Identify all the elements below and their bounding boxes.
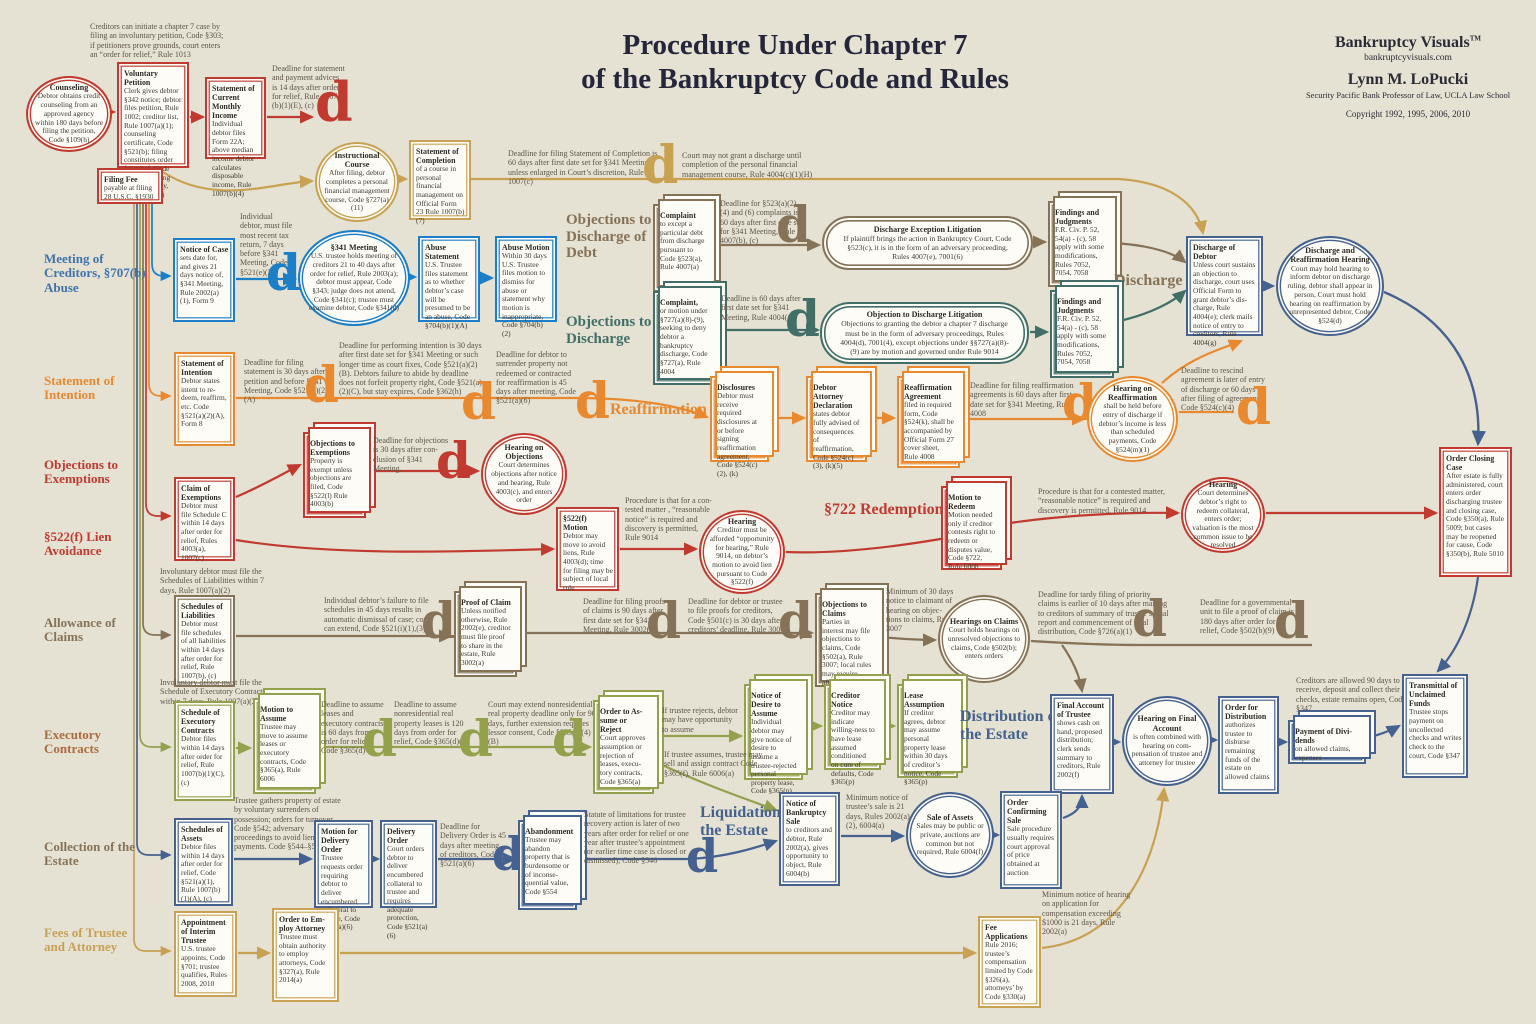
note-trustee-proofs: Deadline for debtor or trustee to file p… — [688, 597, 788, 634]
objections-claims-stack-title: Objections to Claims — [822, 600, 873, 618]
complaint-debt-stack-body: to except a particular debt from dischar… — [660, 219, 704, 271]
copyright: Copyright 1992, 1995, 2006, 2010 — [1280, 109, 1536, 119]
claim-exemptions-box-title: Claim of Exemptions — [181, 484, 229, 502]
brand-tm: TM — [1470, 35, 1481, 43]
note-surrender-text: Deadline for debtor to surrender propert… — [496, 350, 576, 405]
label-lien-avoidance: §522(f) Lien Avoidance — [44, 530, 148, 559]
statement-intention-box: Statement of IntentionDebtor states inte… — [174, 352, 235, 446]
claim-exemptions-box-body: Debtor must file Schedule C within 14 da… — [181, 501, 227, 562]
abuse-statement-box: Abuse StatementU.S. Trustee files statem… — [418, 236, 480, 322]
objection-discharge-litigation-pill: Objection to Discharge LitigationObjecti… — [820, 302, 1029, 364]
complaint-discharge-stack: Complaint,or motion under §727(a)(8)-(9)… — [653, 291, 717, 385]
hearing-522f-circle: HearingCreditor must be afforded “opport… — [699, 510, 785, 594]
deadline-d-completion: d — [642, 145, 678, 188]
figure-title-line1: Procedure Under Chapter 7 — [495, 28, 1095, 62]
publisher-block: Bankruptcy VisualsTM bankruptcyvisuals.c… — [1280, 34, 1536, 119]
fee-applications-box-title: Fee Applications — [985, 923, 1035, 941]
transmittal-unclaimed-box-body: Trustee stops payment on uncollected che… — [1409, 707, 1462, 759]
label-meeting-of-creditors: Meeting of Creditors, §707(b) Abuse — [44, 252, 150, 295]
complaint-debt-stack: Complaintto except a particular debt fro… — [653, 204, 711, 292]
deadline-d-completion-text: d — [642, 135, 678, 196]
employ-attorney-box: Order to Em-ploy AttorneyTrustee must ob… — [272, 908, 339, 1002]
employ-attorney-box-title: Order to Em-ploy Attorney — [279, 915, 333, 933]
counseling-circle-body: Debtor obtains credit counseling from an… — [35, 92, 103, 144]
final-account-box-title: Final Account of Trustee — [1057, 701, 1108, 719]
objections-exemptions-stack-title: Objections to Exemptions — [310, 439, 360, 457]
deadline-d-tardy-text: d — [1132, 589, 1167, 648]
deadline-d-exemptions-text: d — [436, 431, 471, 490]
hearing-reaffirmation-circle-body: shall be held before entry of discharge … — [1096, 402, 1169, 454]
abuse-motion-box: Abuse MotionWithin 30 days U.S. Trustee … — [495, 236, 557, 322]
deadline-d-523: d — [776, 204, 811, 245]
hearing-final-account-circle: Hearing on Final Accountis often combine… — [1122, 696, 1212, 786]
discharge-exception-litigation-pill-body: If plaintiff brings the action in Bankru… — [840, 234, 1015, 261]
voluntary-petition-box-title: Voluntary Petition — [124, 69, 183, 87]
transmittal-unclaimed-box-title: Transmittal of Unclaimed Funds — [1409, 681, 1462, 708]
order-closing-case-box-body: After estate is fully administered, cour… — [1446, 471, 1504, 558]
label-executory-contracts: Executory Contracts — [44, 728, 144, 757]
label-allowance-claims-text: Allowance of Claims — [44, 615, 116, 644]
note-sale-21-days-text: Minimum notice of trustee’s sale is 21 d… — [846, 793, 910, 830]
interim-trustee-box-title: Appointment of Interim Trustee — [181, 918, 231, 945]
order-distribution-box-body: authorizes trustee to disburse remaining… — [1225, 720, 1270, 781]
schedule-executory-box-body: Debtor files within 14 days after order … — [181, 734, 225, 786]
notice-bankruptcy-sale-box: Notice of Bankruptcy Saleto creditors an… — [779, 792, 840, 886]
deadline-d-extend-text: d — [552, 709, 587, 768]
label-statement-of-intention: Statement of Intention — [44, 374, 148, 403]
deadline-d-governmental: d — [1274, 600, 1309, 641]
motion-522f-box: §522(f) MotionDebtor may move to avoid l… — [556, 507, 619, 591]
delivery-order-box-body: Court orders debtor to deliver encumbere… — [387, 844, 427, 940]
abuse-statement-box-title: Abuse Statement — [425, 243, 474, 261]
final-account-box: Final Account of Trusteeshows cash on ha… — [1050, 694, 1114, 794]
deadline-d-tax: d — [266, 252, 301, 293]
objections-exemptions-stack-body: Property is exempt unless objections are… — [310, 456, 352, 508]
fee-applications-box: Fee ApplicationsRule 2016; trustee’s com… — [978, 916, 1041, 1008]
lease-assumption-stack: Lease AssumptionIf creditor agrees, debt… — [897, 684, 958, 778]
hearing-reaffirmation-circle: Hearing on Reaffirmationshall be held be… — [1087, 376, 1178, 462]
findings-judgments-discharge-stack-title: Findings and Judgments — [1057, 297, 1108, 315]
deadline-d-intention-performing-text: d — [461, 372, 496, 431]
proof-of-claim-stack: Proof of ClaimUnless notified otherwise,… — [454, 591, 517, 677]
objections-exemptions-stack: Objections to ExemptionsProperty is exem… — [303, 432, 366, 518]
label-fees-trustee-text: Fees of Trustee and Attorney — [44, 925, 127, 954]
note-statute-limitations-text: Statute of limitations for trustee recov… — [584, 810, 689, 865]
deadline-d-failure-text: d — [421, 591, 456, 650]
note-failure-schedules-text: Individual debtor’s failure to file sche… — [324, 596, 432, 633]
motion-redeem-stack-body: Motion needed only if creditor contests … — [948, 510, 995, 571]
order-assume-reject-stack-body: Court approves assumption or rejection o… — [600, 733, 645, 785]
reaffirmation-agreement-stack-body: filed in required form, Code §524(k), sh… — [904, 400, 954, 461]
creditor-notice-stack-body: Creditor may indicate willing-ness to ha… — [831, 708, 875, 786]
note-involuntary-liabilities-text: Involuntary debtor must file the Schedul… — [160, 567, 264, 595]
findings-judgments-debt-stack-title: Findings and Judgments — [1055, 208, 1106, 226]
statement-completion-box: Statement of Completionof a course in pe… — [409, 140, 471, 220]
deadline-d-rescind: d — [1236, 386, 1271, 427]
label-reaffirmation: Reaffirmation — [610, 401, 724, 419]
schedules-assets-box-body: Debtor files within 14 days after order … — [181, 842, 225, 903]
deadline-d-statute: d — [686, 838, 718, 876]
deadline-d-proofs-text: d — [646, 591, 681, 650]
findings-judgments-discharge-stack: Findings and JudgmentsF.R. Civ. P. 52, 5… — [1050, 290, 1114, 378]
deadline-d-intention-filing: d — [304, 364, 339, 405]
discharge-exception-litigation-pill: Discharge Exception LitigationIf plainti… — [822, 216, 1033, 270]
note-reaffirmation-deadline: Deadline for filing reaffirmation agreem… — [970, 381, 1074, 418]
hearing-objections-circle-body: Court determines objections after notice… — [490, 461, 558, 505]
findings-judgments-debt-stack-body: F.R. Civ. P. 52, 54(a) - (c), 58 apply w… — [1055, 225, 1104, 277]
discharge-reaffirmation-hearing-circle: Discharge and Reaffirmation HearingCourt… — [1276, 236, 1384, 336]
filing-fee-box: Filing Feepayable at filing 28 U.S.C. §1… — [97, 168, 163, 204]
instructional-course-circle-title: Instructional Course — [324, 151, 390, 170]
deadline-d-statute-text: d — [686, 829, 718, 883]
motion-522f-box-title: §522(f) Motion — [563, 514, 613, 532]
note-contested-matter-2-text: Procedure is that for a contested matter… — [1038, 487, 1165, 515]
schedules-assets-box: Schedules of AssetsDebtor files within 1… — [174, 818, 233, 906]
deadline-d-surrender-text: d — [575, 371, 610, 430]
objection-discharge-litigation-pill-body: Objections to granting the debtor a chap… — [838, 319, 1011, 355]
deadline-d-523-text: d — [776, 195, 811, 254]
creditor-notice-stack-title: Creditor Notice — [831, 691, 875, 709]
label-statement-of-intention-text: Statement of Intention — [44, 373, 114, 402]
sale-of-assets-circle: Sale of AssetsSales may be public or pri… — [906, 792, 994, 878]
deadline-d-assume-60-text: d — [362, 709, 397, 768]
voluntary-petition-box: Voluntary PetitionClerk gives debtor §34… — [117, 62, 189, 168]
payment-dividends-stack: Payment of Divi-dendson allowed claims, … — [1288, 720, 1366, 764]
final-account-box-body: shows cash on hand, proposed distributio… — [1057, 718, 1102, 779]
payment-dividends-stack-title: Payment of Divi-dends — [1295, 727, 1360, 745]
author-name: Lynn M. LoPucki — [1280, 71, 1536, 89]
monthly-income-box-body: Individual debtor files Form 22A; above … — [212, 119, 254, 197]
label-objections-discharge-debt-text: Objections to Discharge of Debt — [566, 212, 651, 261]
schedule-executory-box: Schedule of Executory ContractsDebtor fi… — [174, 701, 235, 801]
lease-assumption-stack-title: Lease Assumption — [904, 691, 952, 709]
deadline-d-intention-filing-text: d — [304, 355, 339, 414]
findings-judgments-discharge-stack-body: F.R. Civ. P. 52, 54(a) - (c), 58 apply w… — [1057, 314, 1106, 366]
payment-dividends-stack-body: on allowed claims, expenses — [1295, 744, 1351, 762]
monthly-income-box: Statement of Current Monthly IncomeIndiv… — [205, 77, 266, 159]
abandonment-stack: AbandonmentTrustee may abandon property … — [518, 820, 577, 910]
counseling-circle: CounselingDebtor obtains credit counseli… — [26, 76, 112, 152]
note-completion-deadline: Deadline for filing Statement of Complet… — [508, 149, 658, 186]
author-title: Security Pacific Bank Professor of Law, … — [1280, 90, 1536, 100]
order-confirming-sale-box: Order Confirming SaleSale procedure usua… — [1000, 791, 1062, 889]
hearing-redeem-circle: HearingCourt determines debtor’s right t… — [1181, 477, 1265, 553]
deadline-d-governmental-text: d — [1274, 591, 1309, 650]
transmittal-unclaimed-box: Transmittal of Unclaimed FundsTrustee st… — [1402, 674, 1468, 778]
note-trustee-rejects: If trustee rejects, debtor may have oppo… — [662, 706, 738, 734]
note-min-notice-compensation: Minimum notice of hearing on application… — [1042, 890, 1140, 936]
reaffirmation-agreement-stack: Reaffirmation Agreementfiled in required… — [897, 376, 960, 468]
creditor-notice-stack: Creditor NoticeCreditor may indicate wil… — [824, 684, 881, 770]
note-contested-matter-1-text: Procedure is that for a con-tested matte… — [625, 496, 712, 542]
hearing-objections-circle: Hearing on ObjectionsCourt determines ob… — [481, 433, 567, 515]
note-90-days-checks-text: Creditors are allowed 90 days to receive… — [1296, 676, 1406, 713]
deadline-d-assume-60: d — [362, 718, 397, 759]
schedule-executory-box-title: Schedule of Executory Contracts — [181, 708, 229, 735]
disclosures-stack-body: Debtor must receive required disclosures… — [717, 391, 757, 478]
note-trustee-rejects-text: If trustee rejects, debtor may have oppo… — [662, 706, 738, 734]
schedules-liabilities-box-body: Debtor must file schedules of all liabil… — [181, 619, 226, 680]
proof-of-claim-stack-body: Unless notified otherwise, Rule 2002(e),… — [461, 606, 511, 667]
figure-title-line2: of the Bankruptcy Code and Rules — [495, 62, 1095, 96]
schedules-liabilities-box: Schedules of LiabilitiesDebtor must file… — [174, 595, 235, 687]
hearings-claims-circle-body: Court holds hearings on unresolved objec… — [947, 626, 1021, 661]
motion-delivery-order-box: Motion for Delivery OrderTrustee request… — [314, 820, 373, 908]
label-fees-trustee: Fees of Trustee and Attorney — [44, 926, 144, 955]
deadline-d-intention-performing: d — [461, 381, 496, 422]
discharge-of-debtor-box: Discharge of DebtorUnless court sustains… — [1186, 236, 1263, 336]
note-no-discharge-until-course-text: Court may not grant a discharge until co… — [682, 151, 812, 179]
note-creditors-involuntary: Creditors can initiate a chapter 7 case … — [90, 22, 224, 59]
statement-intention-box-body: Debtor states intent to re-deem, reaffir… — [181, 376, 227, 428]
label-meeting-of-creditors-text: Meeting of Creditors, §707(b) Abuse — [44, 251, 146, 295]
label-collection-estate-text: Collection of the Estate — [44, 839, 135, 868]
label-objections-exemptions-text: Objections to Exemptions — [44, 457, 118, 486]
schedules-liabilities-box-title: Schedules of Liabilities — [181, 602, 229, 620]
note-90-days-checks: Creditors are allowed 90 days to receive… — [1296, 676, 1412, 713]
deadline-d-trustee-proofs: d — [778, 600, 813, 641]
sale-of-assets-circle-body: Sales may be public or private, auctions… — [915, 822, 985, 857]
label-collection-estate: Collection of the Estate — [44, 840, 144, 869]
filing-fee-box-body: payable at filing 28 U.S.C. §1930 — [104, 183, 153, 201]
order-confirming-sale-box-title: Order Confirming Sale — [1007, 798, 1056, 825]
meeting-341-circle-body: U.S. trustee holds meeting of creditors … — [307, 252, 401, 313]
deadline-d-tax-text: d — [266, 243, 301, 302]
note-trustee-assumes: If trustee assumes, trustee may sell and… — [664, 750, 764, 778]
meeting-341-circle: §341 MeetingU.S. trustee holds meeting o… — [298, 230, 410, 326]
deadline-d-failure: d — [421, 600, 456, 641]
notice-of-case-box-body: sets date for, and gives 21 days notice … — [180, 253, 223, 305]
fee-applications-box-body: Rule 2016; trustee’s compensation limite… — [985, 940, 1033, 1001]
label-722-redemption-text: §722 Redemption — [824, 501, 944, 518]
deadline-d-statement: d — [315, 80, 353, 124]
delivery-order-box-title: Delivery Order — [387, 827, 431, 845]
notice-of-case-box: Notice of Casesets date for, and gives 2… — [173, 238, 235, 322]
deadline-d-rescind-text: d — [1236, 377, 1271, 436]
label-allowance-claims: Allowance of Claims — [44, 616, 144, 645]
label-reaffirmation-text: Reaffirmation — [610, 401, 707, 418]
notice-desire-assume-stack-title: Notice of Desire to Assume — [751, 691, 797, 718]
complaint-discharge-stack-body: or motion under §727(a)(8)-(9), seeking … — [660, 306, 708, 376]
discharge-of-debtor-box-title: Discharge of Debtor — [1193, 243, 1257, 261]
deadline-d-surrender: d — [575, 380, 610, 421]
label-distribution-estate-text: Distribution of the Estate — [960, 708, 1061, 743]
motion-assume-stack: Motion to AssumeTrustee may move to assu… — [253, 698, 316, 794]
hearing-522f-circle-body: Creditor must be afforded “opportunity f… — [708, 526, 776, 587]
order-closing-case-box: Order Closing CaseAfter estate is fully … — [1439, 447, 1512, 577]
discharge-reaffirmation-hearing-circle-title: Discharge and Reaffirmation Hearing — [1285, 246, 1375, 265]
chapter7-flowchart: Procedure Under Chapter 7 of the Bankrup… — [0, 0, 1536, 1024]
statement-intention-box-title: Statement of Intention — [181, 359, 229, 377]
instructional-course-circle: Instructional CourseAfter filing, debtor… — [315, 142, 399, 222]
debtor-attorney-declaration-stack-body: states debtor fully advised of consequen… — [813, 409, 859, 470]
disclosures-stack: DisclosuresDebtor must receive required … — [710, 376, 769, 462]
abandonment-stack-body: Trustee may abandon property that is bur… — [525, 835, 570, 896]
objection-discharge-litigation-pill-title: Objection to Discharge Litigation — [867, 310, 983, 319]
hearing-redeem-circle-body: Court determines debtor’s right to redee… — [1190, 489, 1256, 550]
note-completion-deadline-text: Deadline for filing Statement of Complet… — [508, 149, 657, 186]
abuse-statement-box-body: U.S. Trustee files statement as to wheth… — [425, 260, 470, 330]
note-involuntary-liabilities: Involuntary debtor must file the Schedul… — [160, 567, 264, 595]
hearing-final-account-circle-title: Hearing on Final Account — [1131, 714, 1203, 733]
instructional-course-circle-body: After filing, debtor completes a persona… — [324, 169, 390, 213]
note-surrender: Deadline for debtor to surrender propert… — [496, 350, 580, 406]
order-confirming-sale-box-body: Sale procedure usually requires court ap… — [1007, 824, 1054, 876]
label-722-redemption: §722 Redemption — [824, 501, 948, 519]
discharge-of-debtor-box-body: Unless court sustains an objection to di… — [1193, 260, 1255, 347]
label-lien-avoidance-text: §522(f) Lien Avoidance — [44, 529, 112, 558]
note-no-discharge-until-course: Court may not grant a discharge until co… — [682, 151, 816, 179]
order-distribution-box-title: Order for Distribution — [1225, 703, 1273, 721]
lease-assumption-stack-body: If creditor agrees, debtor may assume pe… — [904, 708, 948, 786]
note-creditors-involuntary-text: Creditors can initiate a chapter 7 case … — [90, 22, 223, 59]
discharge-exception-litigation-pill-title: Discharge Exception Litigation — [874, 225, 981, 234]
monthly-income-box-title: Statement of Current Monthly Income — [212, 84, 260, 120]
statement-completion-box-body: of a course in personal financial manage… — [416, 164, 464, 225]
deadline-d-exemptions: d — [436, 440, 471, 481]
notice-bankruptcy-sale-box-title: Notice of Bankruptcy Sale — [786, 799, 834, 826]
hearing-objections-circle-title: Hearing on Objections — [490, 443, 558, 462]
note-trustee-proofs-text: Deadline for debtor or trustee to file p… — [688, 597, 784, 634]
order-closing-case-box-title: Order Closing Case — [1446, 454, 1506, 472]
deadline-d-trustee-proofs-text: d — [778, 591, 813, 650]
note-contested-matter-2: Procedure is that for a contested matter… — [1038, 487, 1170, 515]
deadline-d-statement-text: d — [315, 70, 353, 134]
note-reaffirmation-deadline-text: Deadline for filing reaffirmation agreem… — [970, 381, 1074, 418]
motion-assume-stack-title: Motion to Assume — [260, 705, 310, 723]
debtor-attorney-declaration-stack-title: Debtor Attorney Declaration — [813, 383, 861, 410]
schedules-assets-box-title: Schedules of Assets — [181, 825, 227, 843]
hearing-final-account-circle-body: is often combined with hearing on com-pe… — [1131, 733, 1203, 768]
note-statute-limitations: Statute of limitations for trustee recov… — [584, 810, 692, 866]
order-assume-reject-stack-title: Order to As-sume or Reject — [600, 707, 648, 734]
deadline-d-proofs: d — [646, 600, 681, 641]
order-distribution-box: Order for Distributionauthorizes trustee… — [1218, 696, 1279, 794]
findings-judgments-debt-stack: Findings and JudgmentsF.R. Civ. P. 52, 5… — [1048, 201, 1112, 287]
motion-522f-box-body: Debtor may move to avoid liens, Rule 400… — [563, 531, 613, 592]
debtor-attorney-declaration-stack: Debtor Attorney Declarationstates debtor… — [806, 376, 867, 462]
hearings-claims-circle: Hearings on ClaimsCourt holds hearings o… — [938, 595, 1030, 683]
employ-attorney-box-body: Trustee must obtain authority to employ … — [279, 932, 326, 984]
brand-name: Bankruptcy VisualsTM — [1280, 34, 1536, 52]
figure-title: Procedure Under Chapter 7 of the Bankrup… — [495, 28, 1095, 96]
label-objections-exemptions: Objections to Exemptions — [44, 458, 160, 487]
motion-redeem-stack-title: Motion to Redeem — [948, 493, 996, 511]
hearing-reaffirmation-circle-title: Hearing on Reaffirmation — [1096, 384, 1169, 403]
order-assume-reject-stack: Order to As-sume or RejectCourt approves… — [593, 700, 654, 794]
reaffirmation-agreement-stack-title: Reaffirmation Agreement — [904, 383, 954, 401]
notice-bankruptcy-sale-box-body: to creditors and debtor, Rule 2002(a), g… — [786, 825, 832, 877]
label-objections-discharge-text: Objections to Discharge — [566, 314, 651, 347]
brand-site: bankruptcyvisuals.com — [1280, 53, 1536, 63]
interim-trustee-box: Appointment of Interim TrusteeU.S. trust… — [174, 911, 237, 997]
delivery-order-box: Delivery OrderCourt orders debtor to del… — [380, 820, 437, 908]
abuse-motion-box-body: Within 30 days U.S. Trustee files motion… — [502, 251, 547, 338]
deadline-d-4004-text: d — [785, 289, 820, 348]
discharge-reaffirmation-hearing-circle-body: Court may hold hearing to inform debtor … — [1285, 265, 1375, 326]
statement-completion-box-title: Statement of Completion — [416, 147, 465, 165]
claim-exemptions-box: Claim of ExemptionsDebtor must file Sche… — [174, 477, 235, 561]
motion-redeem-stack: Motion to RedeemMotion needed only if cr… — [941, 486, 1002, 570]
note-min-notice-compensation-text: Minimum notice of hearing on application… — [1042, 890, 1130, 936]
deadline-d-extend: d — [552, 718, 587, 759]
label-executory-contracts-text: Executory Contracts — [44, 727, 101, 756]
note-trustee-assumes-text: If trustee assumes, trustee may sell and… — [664, 750, 762, 778]
interim-trustee-box-body: U.S. trustee appoints, Code §701; truste… — [181, 944, 227, 988]
deadline-d-4004: d — [785, 298, 820, 339]
motion-assume-stack-body: Trustee may move to assume leases or exe… — [260, 722, 308, 783]
motion-delivery-order-box-title: Motion for Delivery Order — [321, 827, 367, 854]
deadline-d-tardy: d — [1132, 598, 1167, 639]
